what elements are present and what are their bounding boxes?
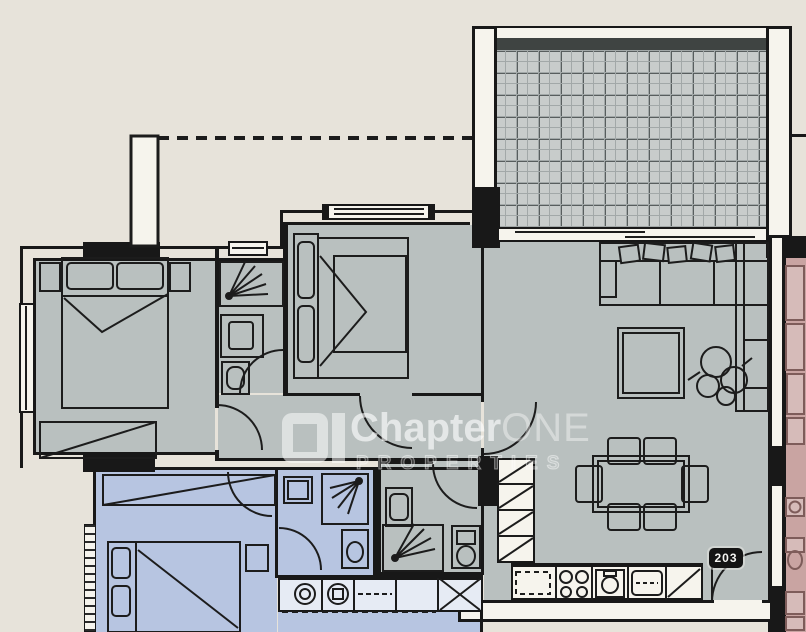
sofa-pillows [619,243,735,263]
blanket-fold [138,550,238,628]
blanket-fold [64,294,168,332]
door-arc [433,464,477,508]
floor-plan: ChapterONE PROPERTIES 203 [0,0,806,632]
neighbor-bedroom-furniture [103,472,275,632]
bedroom-1-furniture [40,258,190,458]
blanket-fold [320,256,366,366]
nightstand [40,263,60,291]
pillow [67,263,113,289]
canopy-column [131,136,158,246]
kitchen-sink [632,571,662,595]
sofa-armrest [600,261,616,297]
chair [682,466,708,502]
bathroom-2-fixtures [383,464,480,571]
fridge [668,569,700,597]
bathroom-1-fixtures [220,262,283,394]
pillow [298,242,314,298]
kitchen-appliances [516,567,700,600]
plant-decor [688,347,752,405]
pillow [112,586,130,616]
door-arc [360,396,412,448]
sofa-chaise [736,243,768,411]
floor-plan-drawing [0,0,806,632]
nightstand [246,545,268,571]
coffee-table [618,328,684,398]
door-arc [484,402,536,454]
pillow [298,306,314,362]
neighbor-right-furniture [786,266,804,630]
double-bed [62,258,168,408]
pillow [112,548,130,578]
toilet [786,538,804,552]
hob [560,571,588,597]
storage-closet-hatch [497,460,535,561]
neighbor-bathroom-fixtures [279,474,368,570]
nightstand [170,263,190,291]
neighbor-kitchen-appliances [282,578,480,612]
balcony-glass-lines [515,232,755,237]
dining-set [576,438,708,530]
pillow [117,263,163,289]
unit-number-badge: 203 [709,548,743,568]
door-arc [217,405,262,450]
open-counter [516,572,550,594]
door-arc [279,528,321,570]
bedroom-2-furniture [294,234,412,448]
washing-machine [596,570,624,597]
